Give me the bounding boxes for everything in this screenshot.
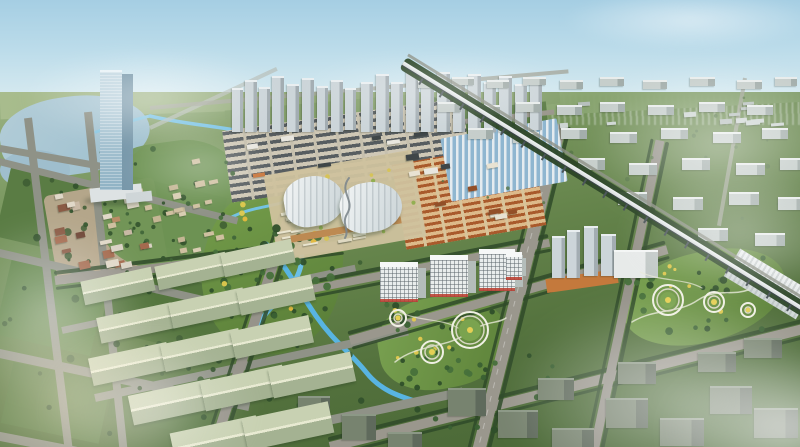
office-building bbox=[430, 255, 476, 297]
office-roof-band bbox=[506, 252, 522, 257]
office-building bbox=[506, 252, 526, 280]
office-signage-strip bbox=[506, 277, 522, 280]
office-building bbox=[380, 262, 426, 302]
cloud bbox=[660, 350, 800, 447]
town-building bbox=[66, 201, 75, 208]
apartment-slab bbox=[448, 388, 486, 416]
cloud bbox=[300, 50, 580, 130]
office-roof-band bbox=[380, 262, 418, 267]
office-front-facade bbox=[430, 259, 468, 297]
office-tower bbox=[567, 230, 580, 278]
office-side-facade bbox=[468, 261, 476, 293]
cloud bbox=[620, 170, 800, 300]
office-side-facade bbox=[522, 258, 526, 276]
office-roof-band bbox=[430, 255, 468, 260]
office-tower bbox=[584, 226, 598, 276]
office-tower bbox=[552, 236, 565, 278]
residential-tower bbox=[287, 84, 299, 132]
office-signage-strip bbox=[430, 294, 468, 297]
cloud bbox=[120, 120, 280, 210]
office-side-facade bbox=[418, 268, 426, 298]
office-signage-strip bbox=[380, 299, 418, 302]
commercial-accent bbox=[440, 163, 450, 169]
cloud-streak bbox=[560, 0, 800, 50]
cloud bbox=[40, 330, 260, 447]
villa-block bbox=[180, 247, 188, 253]
apartment-slab bbox=[342, 414, 376, 440]
office-front-facade bbox=[380, 266, 418, 302]
apartment-slab bbox=[388, 432, 422, 447]
aerial-city-masterplan-rendering bbox=[0, 0, 800, 447]
